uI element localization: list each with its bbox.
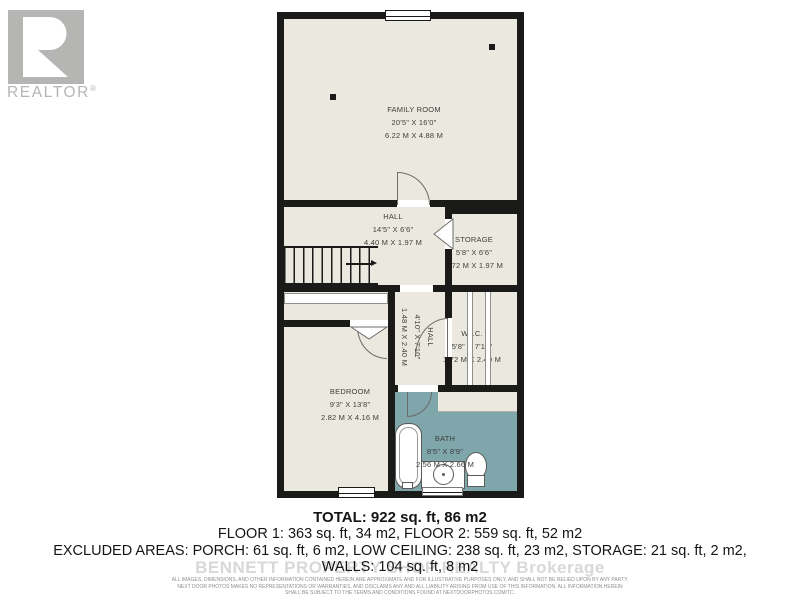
bath-corner-notch [438, 392, 517, 412]
support-post [330, 94, 336, 100]
excluded-areas-text: EXCLUDED AREAS: PORCH: 61 sq. ft, 6 m2, … [0, 543, 800, 560]
storage-door-icon [431, 218, 454, 251]
window [338, 487, 375, 498]
realtor-brand: REALTOR [7, 84, 90, 101]
staircase [284, 246, 378, 285]
window [385, 10, 431, 21]
wall-segment [284, 320, 350, 327]
window [422, 487, 463, 496]
tub-faucet [402, 482, 413, 489]
room-label-bath: BATH 8'5" X 8'9" 2.56 M X 2.66 M [385, 432, 505, 471]
bifold-door-icon [350, 326, 388, 342]
toilet-tank [467, 475, 485, 487]
floor-areas-text: FLOOR 1: 363 sq. ft, 34 m2, FLOOR 2: 559… [0, 526, 800, 543]
realtor-logo [8, 10, 84, 84]
wall-segment [450, 200, 517, 214]
registered-mark: ® [90, 84, 96, 93]
walls-area-text: WALLS: 104 sq. ft, 8 m2 [0, 559, 800, 576]
area-summary: TOTAL: 922 sq. ft, 86 m2 FLOOR 1: 363 sq… [0, 509, 800, 576]
total-area-text: TOTAL: 922 sq. ft, 86 m2 [0, 509, 800, 526]
door-opening [400, 285, 433, 292]
realtor-r-icon [8, 10, 84, 84]
closet-track-strip [467, 292, 473, 385]
wall-segment [284, 200, 397, 207]
stairs-direction-arrow [346, 263, 372, 265]
realtor-logo-text: REALTOR® [7, 84, 137, 102]
sink-drain [442, 473, 445, 476]
support-post [489, 44, 495, 50]
closet-track-strip [485, 292, 491, 385]
disclaimer-line: SHALL BE SUBJECT TO THE TERMS AND CONDIT… [0, 590, 800, 597]
stairs-arrow-head [371, 260, 377, 266]
room-label-family-room: FAMILY ROOM 20'5" X 16'0" 6.22 M X 4.88 … [339, 103, 489, 142]
closet-sliding-door [284, 293, 388, 304]
disclaimer: ALL IMAGES, DIMENSIONS, AND OTHER INFORM… [0, 577, 800, 597]
door-opening [398, 385, 438, 392]
